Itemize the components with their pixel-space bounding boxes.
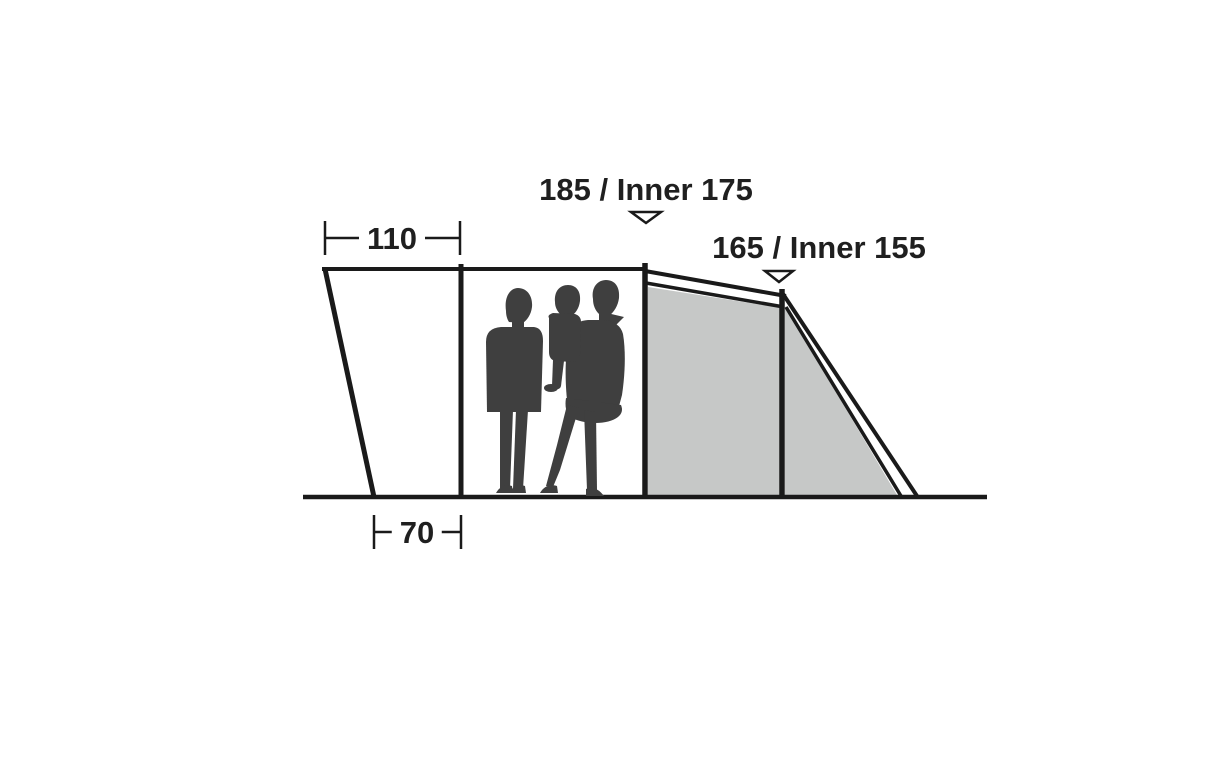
tent-dimension-diagram: 185 / Inner 175 165 / Inner 155 110 70 — [0, 0, 1230, 763]
woman-silhouette — [486, 288, 543, 493]
height-marker-rear-triangle-icon — [765, 271, 793, 282]
height-marker-center-triangle-icon — [631, 212, 661, 223]
label-width-110: 110 — [359, 223, 425, 254]
label-width-70: 70 — [392, 517, 442, 548]
woman-with-child-silhouette — [540, 280, 625, 496]
tent-diagram-svg — [0, 0, 1230, 763]
label-height-rear: 165 / Inner 155 — [712, 232, 926, 263]
people-silhouette — [486, 280, 625, 496]
sleeping-compartment-fill-1 — [648, 287, 782, 495]
front-porch-wall — [325, 269, 374, 497]
label-height-center: 185 / Inner 175 — [539, 174, 753, 205]
